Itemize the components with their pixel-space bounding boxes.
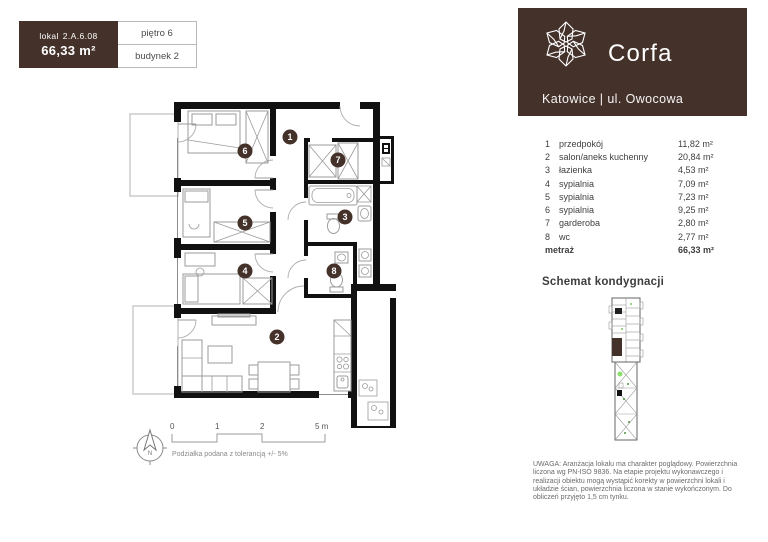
room-no: 6 — [545, 205, 559, 215]
floorplan-card: lokal2.A.6.08 66,33 m² piętro 6 budynek … — [0, 0, 768, 542]
room-marker-7: 7 — [331, 153, 346, 168]
room-name: wc — [559, 232, 678, 242]
svg-text:2: 2 — [260, 422, 265, 431]
room6-furniture — [188, 111, 268, 163]
room-name: sypialnia — [559, 205, 678, 215]
svg-text:1: 1 — [287, 132, 292, 142]
room-area: 7,09 m² — [678, 179, 750, 189]
schematic-highlighted-unit — [612, 338, 622, 356]
room-area: 20,84 m² — [678, 152, 750, 162]
room-name: salon/aneks kuchenny — [559, 152, 678, 162]
svg-text:0: 0 — [170, 422, 175, 431]
room-row: 5sypialnia7,23 m² — [545, 190, 750, 203]
svg-text:4: 4 — [242, 266, 247, 276]
room-no: 1 — [545, 139, 559, 149]
room-marker-6: 6 — [238, 144, 253, 159]
room-row: 7garderoba2,80 m² — [545, 217, 750, 230]
svg-text:3: 3 — [342, 212, 347, 222]
unit-lokal-line: lokal2.A.6.08 — [39, 31, 97, 41]
room2-furniture — [182, 314, 351, 392]
room-row: 6sypialnia9,25 m² — [545, 203, 750, 216]
building-schematic — [607, 296, 645, 444]
room-list: 1przedpokój11,82 m² 2salon/aneks kuchenn… — [545, 137, 750, 257]
total-area: 66,33 m² — [678, 245, 750, 255]
room-marker-1: 1 — [283, 130, 298, 145]
svg-text:1: 1 — [215, 422, 220, 431]
room-area: 9,25 m² — [678, 205, 750, 215]
unit-lokal-label: lokal — [39, 31, 58, 41]
room-no: 3 — [545, 165, 559, 175]
interior-walls — [174, 102, 380, 314]
room-name: garderoba — [559, 218, 678, 228]
room-no: 4 — [545, 179, 559, 189]
room-area: 11,82 m² — [678, 139, 750, 149]
room-area: 4,53 m² — [678, 165, 750, 175]
unit-meta-cells: piętro 6 budynek 2 — [118, 21, 197, 68]
room-marker-3: 3 — [338, 210, 353, 225]
room-row: 3łazienka4,53 m² — [545, 164, 750, 177]
schematic-green-dot — [618, 372, 623, 377]
brand-logo-icon — [541, 18, 591, 68]
room-row: 2salon/aneks kuchenny20,84 m² — [545, 150, 750, 163]
room-total-row: metraż66,33 m² — [545, 243, 750, 256]
schematic-title: Schemat kondygnacji — [542, 276, 664, 288]
unit-floor: piętro 6 — [118, 22, 196, 45]
schematic-dark-unit — [615, 308, 622, 314]
scale-bar: 0 1 2 5 m — [165, 420, 345, 448]
room-no: 7 — [545, 218, 559, 228]
room-marker-5: 5 — [238, 216, 253, 231]
room-row: 8wc2,77 m² — [545, 230, 750, 243]
unit-area: 66,33 m² — [41, 43, 95, 58]
balcony-outlines — [130, 114, 178, 394]
room-area: 7,23 m² — [678, 192, 750, 202]
room3-fixtures — [309, 186, 371, 234]
room-row: 1przedpokój11,82 m² — [545, 137, 750, 150]
svg-text:5 m: 5 m — [315, 422, 329, 431]
room-row: 4sypialnia7,09 m² — [545, 177, 750, 190]
svg-text:5: 5 — [242, 218, 247, 228]
unit-number: 2.A.6.08 — [63, 31, 98, 41]
neighbour-fragment — [351, 298, 396, 428]
svg-text:N: N — [148, 451, 152, 457]
room-area: 2,80 m² — [678, 218, 750, 228]
room-marker-2: 2 — [270, 330, 285, 345]
scale-tolerance-note: Podziałka podana z tolerancją +/- 5% — [172, 451, 288, 458]
brand-name: Corfa — [608, 40, 673, 68]
room-no: 2 — [545, 152, 559, 162]
room-no: 5 — [545, 192, 559, 202]
total-label: metraż — [545, 245, 678, 255]
svg-text:8: 8 — [331, 266, 336, 276]
svg-text:2: 2 — [274, 332, 279, 342]
unit-id-cell: lokal2.A.6.08 66,33 m² — [19, 21, 118, 68]
room4-furniture — [183, 253, 272, 304]
brand-panel: Corfa Katowice | ul. Owocowa — [518, 8, 747, 116]
room-name: sypialnia — [559, 192, 678, 202]
disclaimer-text: UWAGA: Aranżacja lokalu ma charakter pog… — [533, 461, 747, 502]
room-name: łazienka — [559, 165, 678, 175]
room5-furniture — [183, 189, 270, 242]
room-name: sypialnia — [559, 179, 678, 189]
svg-text:7: 7 — [335, 155, 340, 165]
floor-plan: 1 6 7 5 3 4 8 2 — [110, 88, 400, 428]
unit-building: budynek 2 — [118, 45, 196, 67]
room-marker-8: 8 — [327, 264, 342, 279]
svg-text:6: 6 — [242, 146, 247, 156]
room-no: 8 — [545, 232, 559, 242]
room-name: przedpokój — [559, 139, 678, 149]
brand-location: Katowice | ul. Owocowa — [542, 92, 683, 106]
room-marker-4: 4 — [238, 264, 253, 279]
room-area: 2,77 m² — [678, 232, 750, 242]
unit-header: lokal2.A.6.08 66,33 m² piętro 6 budynek … — [19, 21, 197, 68]
